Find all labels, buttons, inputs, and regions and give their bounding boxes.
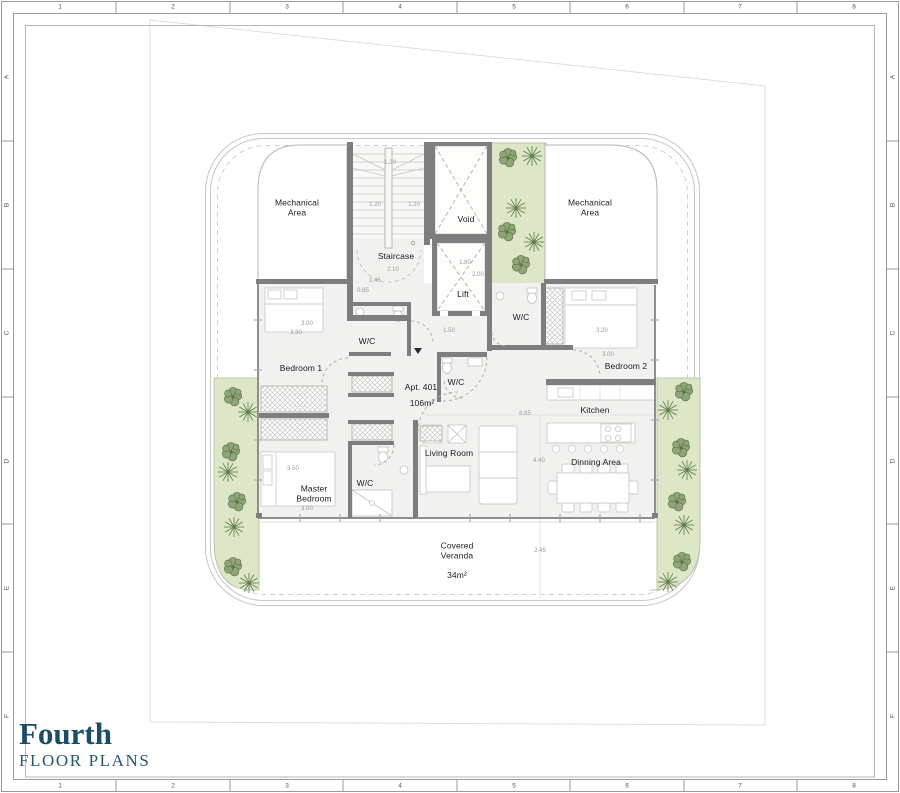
floor-plan-sheet: 12345678 12345678 ABCDEF ABCDEF Mechanic…	[0, 0, 900, 793]
sheet-subtitle: FLOOR PLANS	[19, 752, 150, 769]
title-block: Fourth FLOOR PLANS	[19, 718, 150, 769]
floor-plan-drawing	[0, 0, 900, 793]
sheet-title: Fourth	[19, 718, 150, 749]
